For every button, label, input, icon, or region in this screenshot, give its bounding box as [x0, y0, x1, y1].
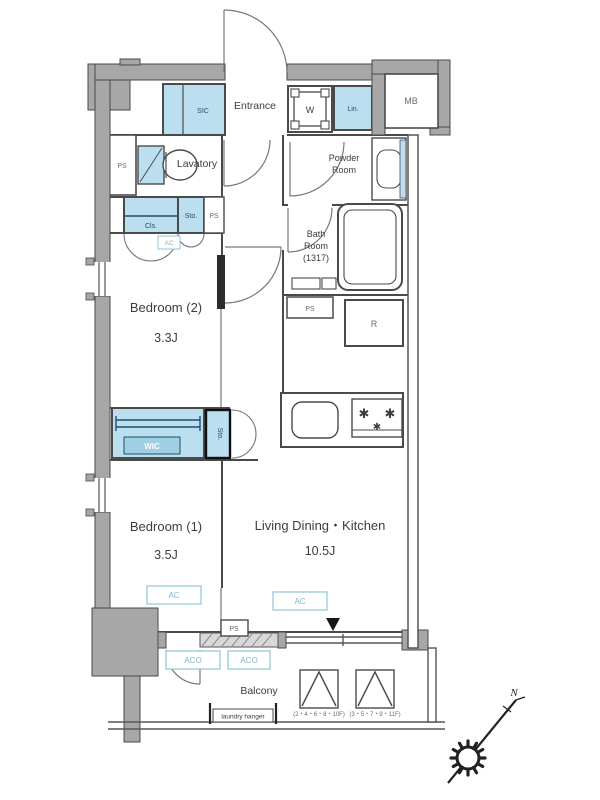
ac-outdoor-unit-left — [300, 670, 338, 708]
wic-label: WIC — [144, 442, 160, 451]
laundry-hanger-label: laundry hanger — [221, 714, 265, 721]
ps-label-topleft: PS — [117, 163, 127, 170]
ac-label-bedroom2: AC — [164, 240, 173, 247]
ac-outdoor-unit-right — [356, 670, 394, 708]
svg-text:✱: ✱ — [373, 422, 381, 433]
entrance-door-arc — [224, 10, 287, 72]
balcony-label: Balcony — [240, 685, 278, 697]
bedroom2-size-label: 3.3J — [154, 331, 178, 345]
washer-label: W — [306, 105, 315, 115]
sto-label-vertical: Sto. — [216, 428, 223, 441]
r-label: R — [371, 319, 378, 329]
shoe-closet-sic: SIC — [163, 84, 225, 135]
bathroom-size-label: (1317) — [303, 253, 329, 263]
laundry-hanger: laundry hanger — [210, 703, 276, 724]
cls-label: Cls. — [145, 223, 157, 230]
bedroom2-window — [86, 258, 111, 300]
compass-north-label: N — [509, 687, 518, 699]
bedroom1-label: Bedroom (1) — [130, 519, 202, 534]
powder-room-label-1: Powder — [329, 153, 360, 163]
bedroom1-size-label: 3.5J — [154, 548, 178, 562]
washbasin-icon — [372, 138, 406, 200]
entrance-label: Entrance — [234, 100, 276, 112]
aco-label-right: ACO — [240, 656, 257, 665]
ps-label-bath: PS — [305, 306, 315, 313]
linen-label: Lin. — [347, 106, 358, 113]
outdoor-unit-floors-left: (2・4・6・8・10F) — [293, 712, 345, 718]
floorplan-page: SIC W Lin. PS Cls. Sto. PS — [0, 0, 600, 800]
ps-label-mid: PS — [209, 213, 219, 220]
sic-label: SIC — [197, 108, 209, 115]
bathroom-label-2: Room — [304, 241, 328, 251]
lavatory-label: Lavatory — [177, 158, 218, 170]
svg-text:✱: ✱ — [359, 406, 370, 421]
svg-text:✱: ✱ — [385, 406, 396, 421]
ldk-size-label: 10.5J — [305, 544, 336, 558]
ac-label-ldk: AC — [294, 597, 305, 606]
bedroom1-window — [86, 474, 111, 516]
ldk-label: Living Dining・Kitchen — [255, 518, 386, 533]
walk-in-closet: WIC — [112, 408, 204, 458]
powder-room-label-2: Room — [332, 165, 356, 175]
compass-icon: N — [448, 687, 525, 783]
sto-label-top: Sto. — [185, 213, 198, 220]
aco-label-left: ACO — [184, 656, 201, 665]
mb-label: MB — [404, 96, 418, 106]
ps-label-bottom: PS — [229, 626, 239, 633]
floorplan-svg: SIC W Lin. PS Cls. Sto. PS — [0, 0, 600, 800]
bathroom-label-1: Bath — [307, 229, 326, 239]
ac-label-bedroom1: AC — [168, 591, 179, 600]
right-outer-wall — [408, 135, 418, 648]
outdoor-unit-floors-right: (3・5・7・9・11F) — [349, 712, 400, 718]
bedroom2-label: Bedroom (2) — [130, 300, 202, 315]
bedroom2-sliding-door-pocket — [217, 255, 225, 309]
